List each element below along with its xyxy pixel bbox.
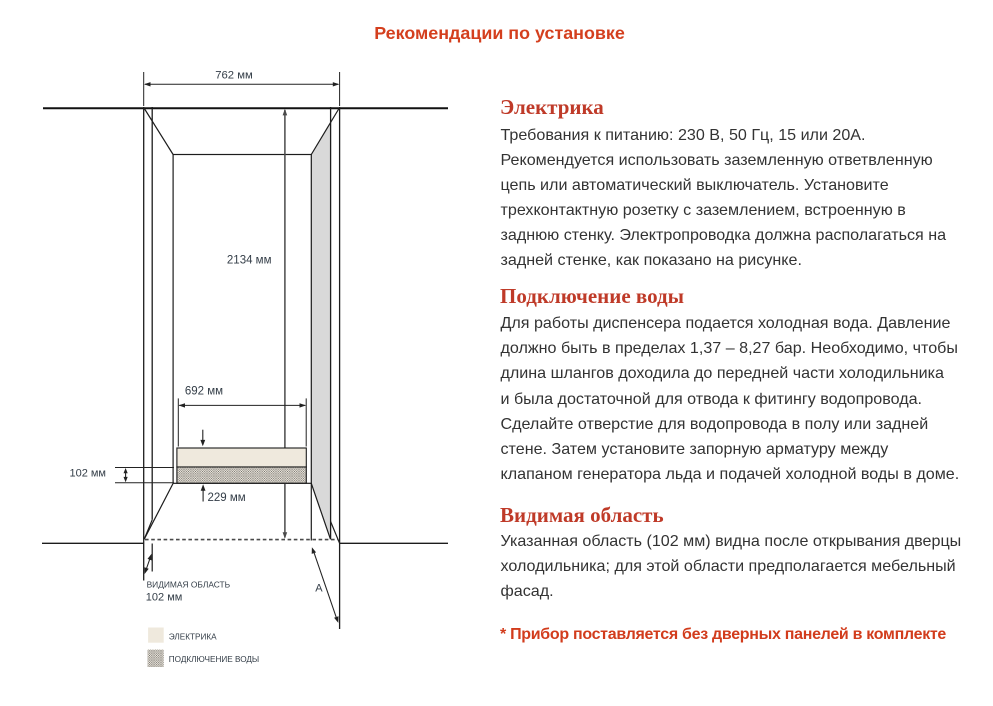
svg-text:ВИДИМАЯ ОБЛАСТЬ: ВИДИМАЯ ОБЛАСТЬ [147,580,231,590]
svg-text:102 мм: 102 мм [146,592,183,604]
svg-text:692 мм: 692 мм [185,386,223,398]
svg-text:762 мм: 762 мм [215,70,253,82]
svg-text:229 мм: 229 мм [208,492,246,504]
svg-text:2134 мм: 2134 мм [227,254,272,266]
svg-text:102 мм: 102 мм [69,467,106,479]
svg-text:ЭЛЕКТРИКА: ЭЛЕКТРИКА [169,632,217,641]
svg-text:A: A [315,583,323,595]
svg-text:ПОДКЛЮЧЕНИЕ ВОДЫ: ПОДКЛЮЧЕНИЕ ВОДЫ [169,655,259,664]
